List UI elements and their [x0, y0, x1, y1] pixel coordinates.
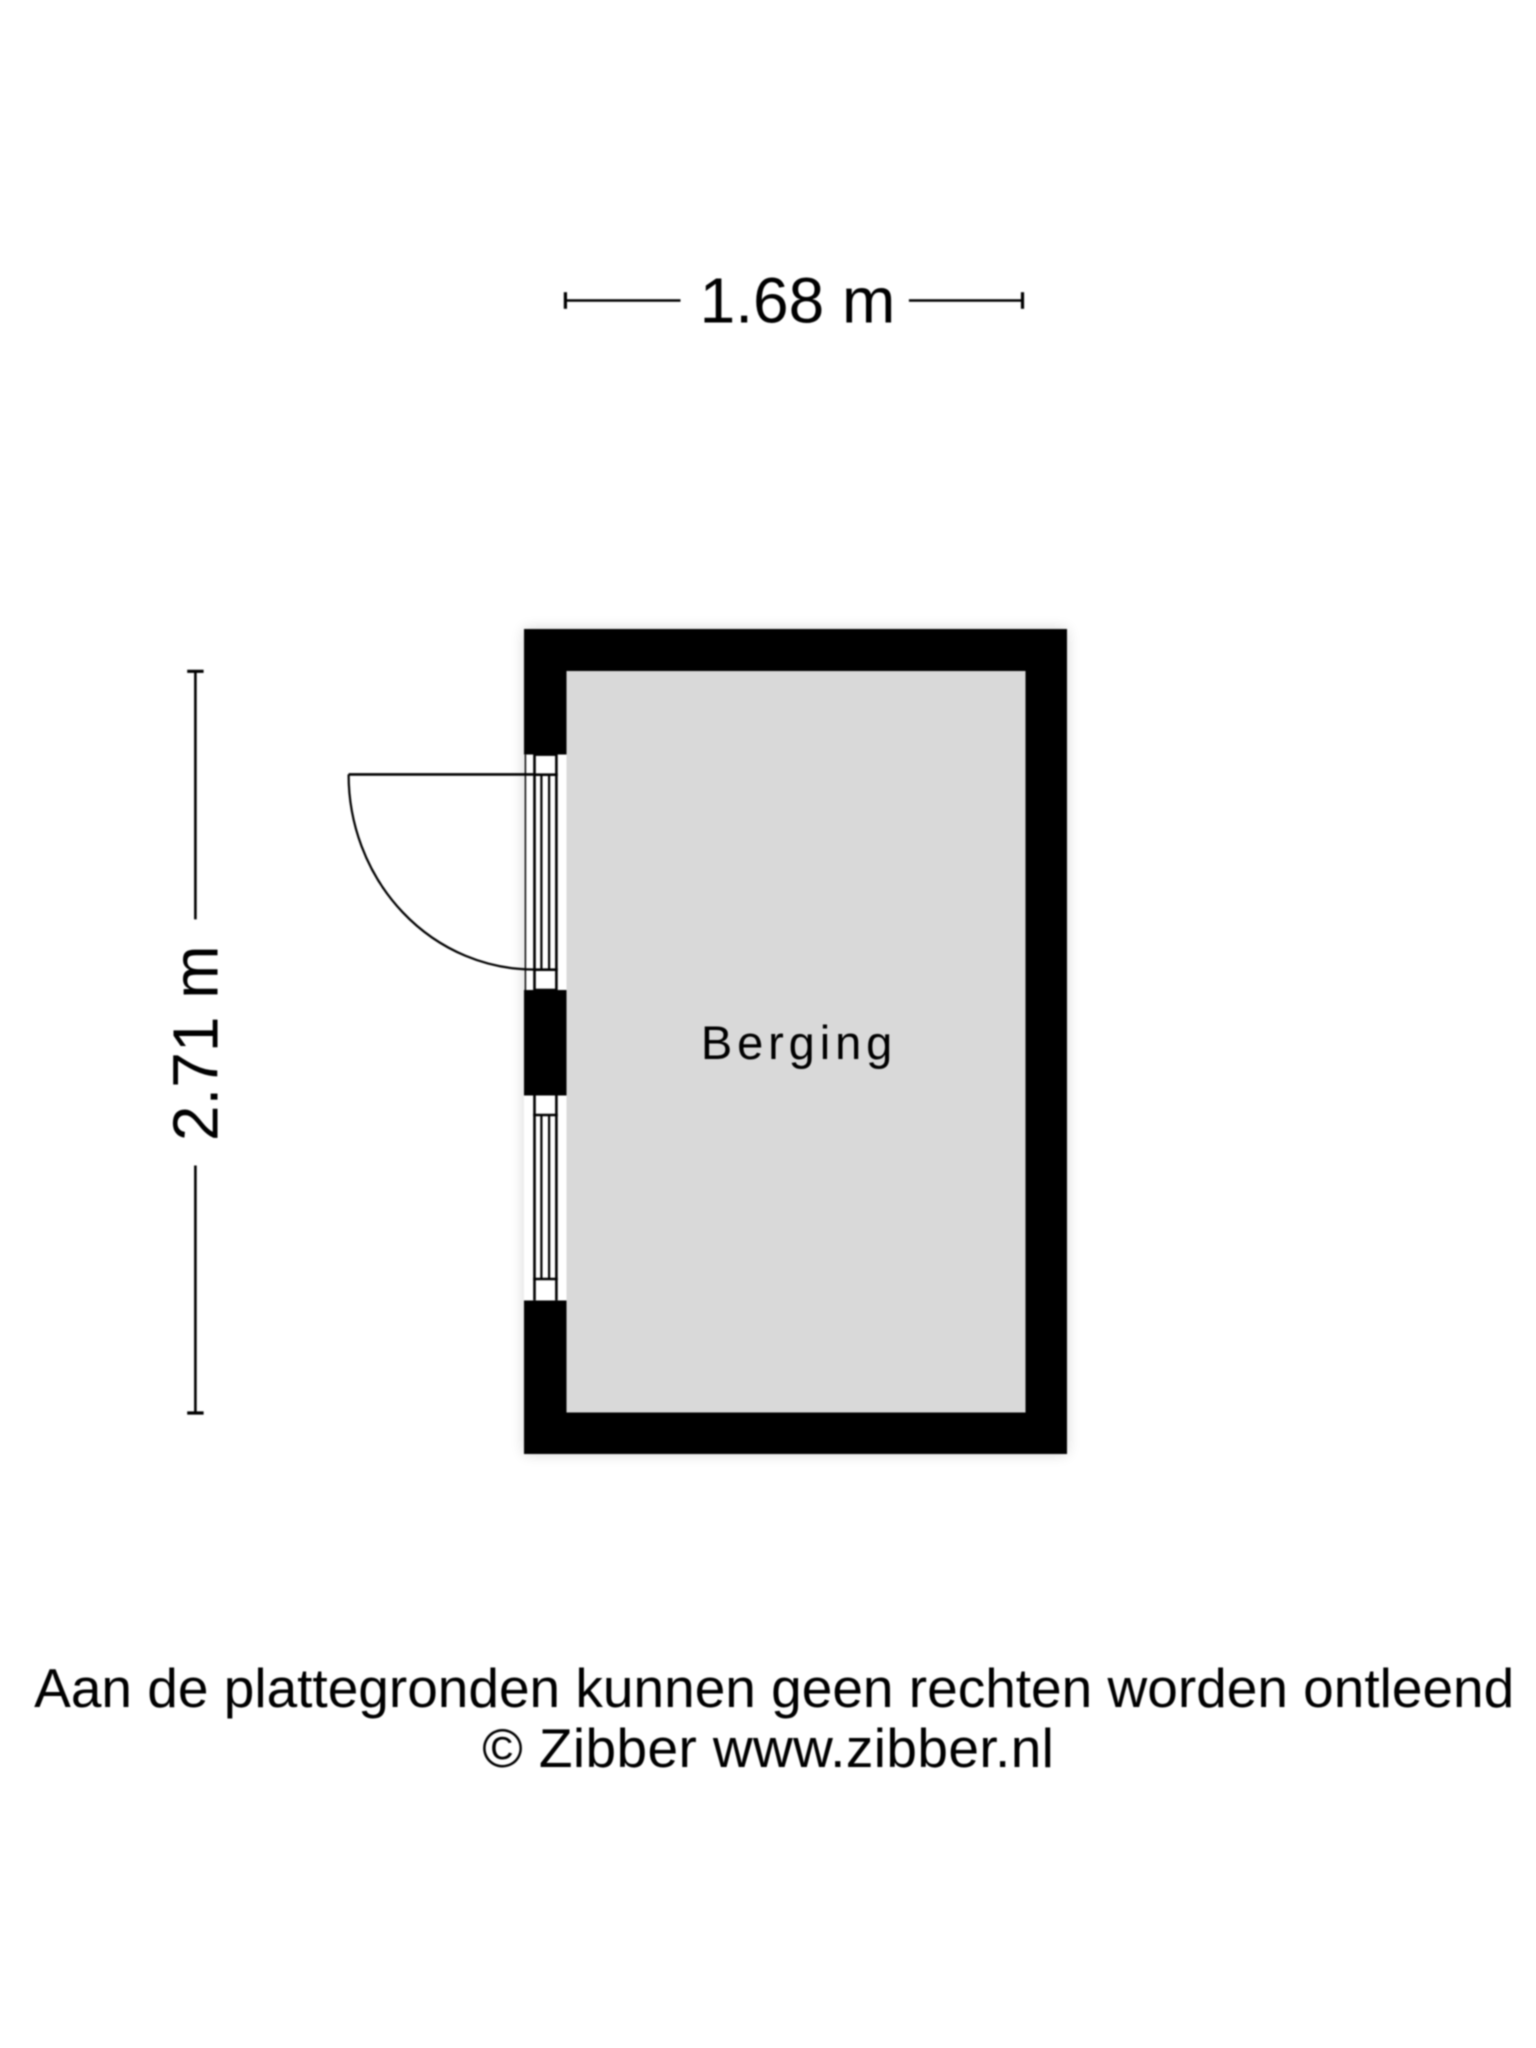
- svg-text:Berging: Berging: [701, 1016, 897, 1069]
- svg-text:© Zibber www.zibber.nl: © Zibber www.zibber.nl: [482, 1717, 1054, 1779]
- svg-text:Aan de plattegronden kunnen ge: Aan de plattegronden kunnen geen rechten…: [34, 1657, 1514, 1719]
- svg-text:1.68 m: 1.68 m: [700, 265, 896, 337]
- svg-text:2.71 m: 2.71 m: [159, 945, 231, 1141]
